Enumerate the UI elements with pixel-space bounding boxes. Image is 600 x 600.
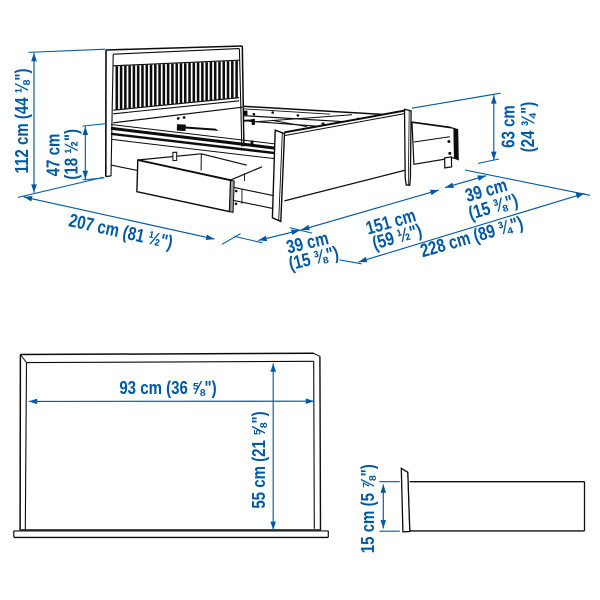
svg-text:55 cm (21 ⅝"): 55 cm (21 ⅝"): [248, 411, 269, 508]
svg-text:112 cm (44 ⅛"): 112 cm (44 ⅛"): [12, 69, 33, 174]
svg-text:93 cm (36 ⅝"): 93 cm (36 ⅝"): [119, 377, 216, 398]
svg-text:(24 ¾"): (24 ¾"): [517, 102, 538, 153]
svg-text:63 cm: 63 cm: [498, 105, 519, 148]
svg-text:15 cm (5 ⅞"): 15 cm (5 ⅞"): [357, 464, 378, 553]
svg-text:(18 ½"): (18 ½"): [61, 129, 82, 180]
